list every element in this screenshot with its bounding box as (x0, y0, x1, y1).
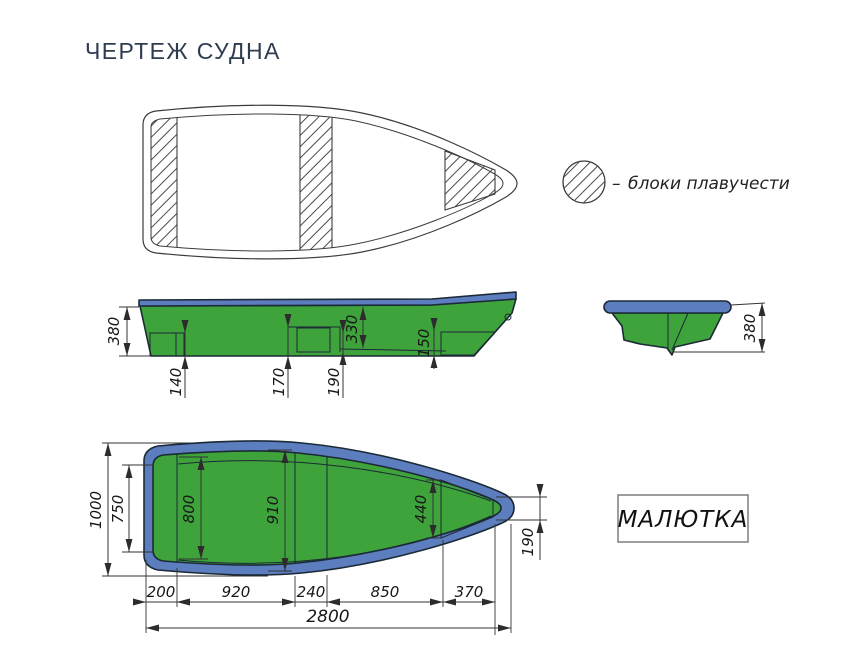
drawing-page: ЧЕРТЕЖ СУДНА (0, 0, 862, 660)
dim-label-length-overall: 2800 (306, 607, 349, 627)
legend-dash: – (612, 174, 621, 194)
dim-label-stern-inner-width: 750 (109, 495, 127, 524)
legend-label: блоки плавучести (628, 174, 790, 194)
dim-label-step-height: 190 (325, 368, 343, 397)
dim-label-mid-block-height: 170 (270, 368, 288, 397)
dim-label-transom-height: 380 (741, 314, 759, 343)
stern-buoyancy-block-hatch (151, 113, 177, 253)
dim-label-beam: 1000 (87, 491, 105, 529)
buoyancy-legend: – блоки плавучести (563, 161, 790, 203)
dim-label-inner-depth: 330 (343, 315, 361, 344)
mid-seat-block-hatch (300, 106, 332, 256)
transom-gunwale-cap (604, 301, 731, 313)
dim-label-bow-block-height: 150 (415, 329, 433, 358)
dim-label-width-aft: 800 (180, 495, 198, 524)
model-plate-label: МАЛЮТКА (618, 507, 749, 533)
side-view: 380 140 170 190 (105, 292, 516, 398)
dim-label-side-depth: 380 (105, 317, 123, 346)
dim-label-seg-seat: 240 (297, 583, 326, 601)
dim-label-stern-block-height: 140 (167, 368, 185, 397)
drawing-canvas: – блоки плавучести 380 (0, 0, 862, 660)
plan-view: 1000 750 800 910 (87, 441, 547, 635)
transom-view: 380 (604, 301, 765, 355)
dim-label-seg-fwd: 850 (371, 583, 400, 601)
dim-label-bow-block-width: 440 (412, 495, 430, 524)
dim-label-width-mid: 910 (264, 496, 282, 525)
top-view (143, 105, 517, 259)
dim-label-seg-stern: 200 (147, 583, 176, 601)
model-plate: МАЛЮТКА (618, 495, 749, 542)
dim-beam: 1000 (87, 443, 108, 576)
dim-label-seg-bow: 370 (455, 583, 484, 601)
dim-label-seg-aft: 920 (222, 583, 251, 601)
legend-hatch-fill (563, 161, 605, 203)
dim-label-bow-tip-width: 190 (519, 528, 537, 557)
